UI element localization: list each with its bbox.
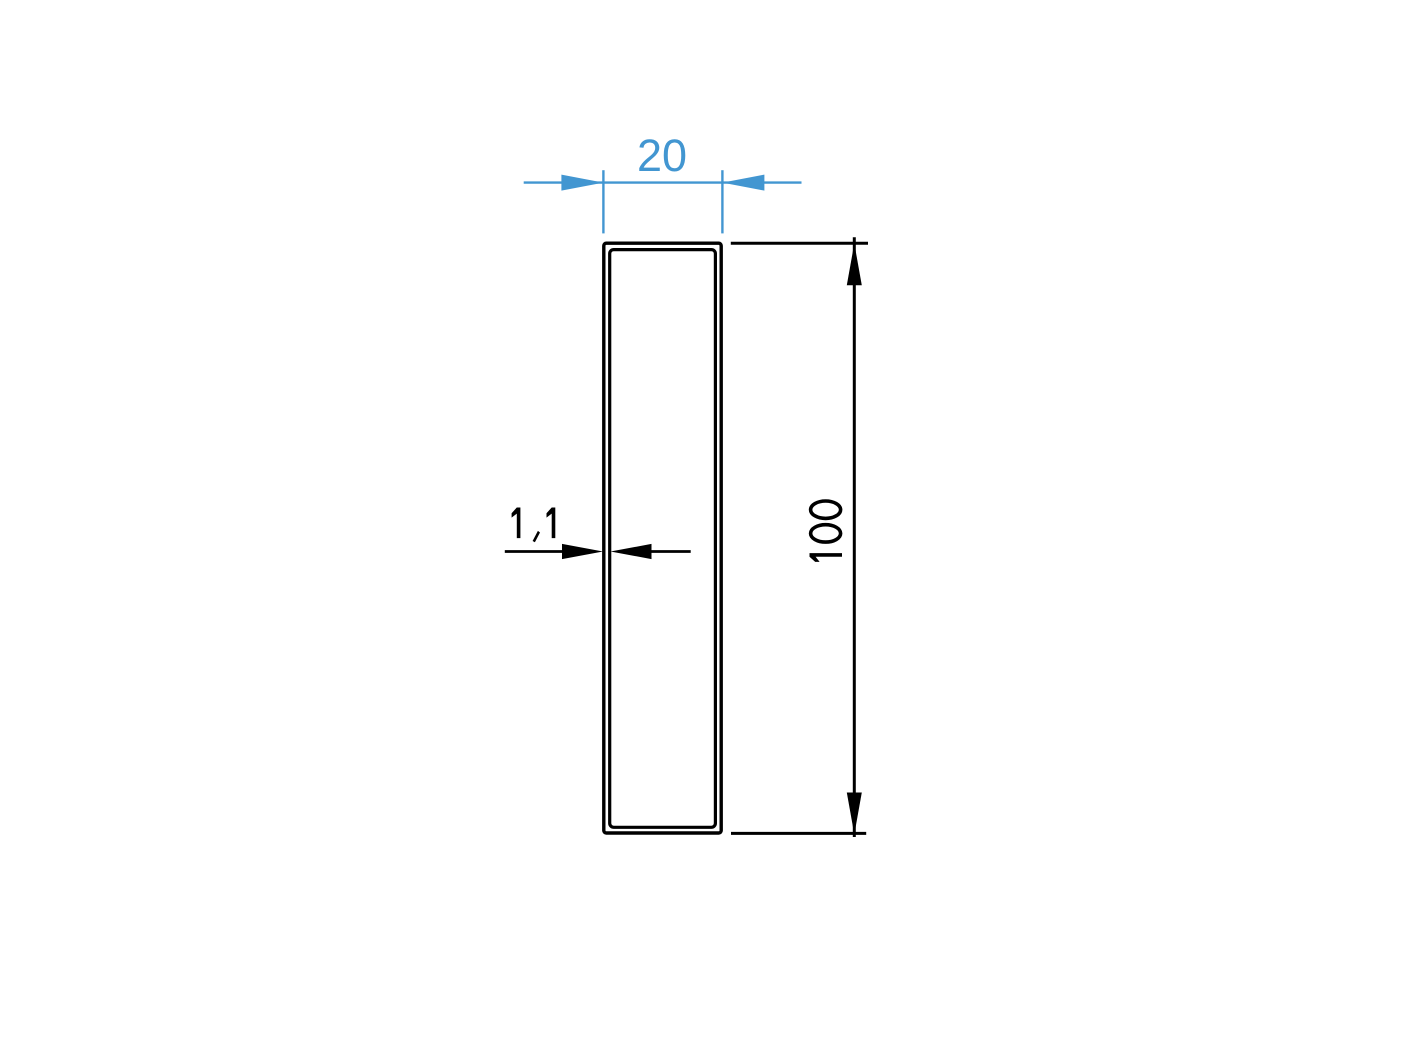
svg-text:20: 20 bbox=[637, 130, 687, 181]
